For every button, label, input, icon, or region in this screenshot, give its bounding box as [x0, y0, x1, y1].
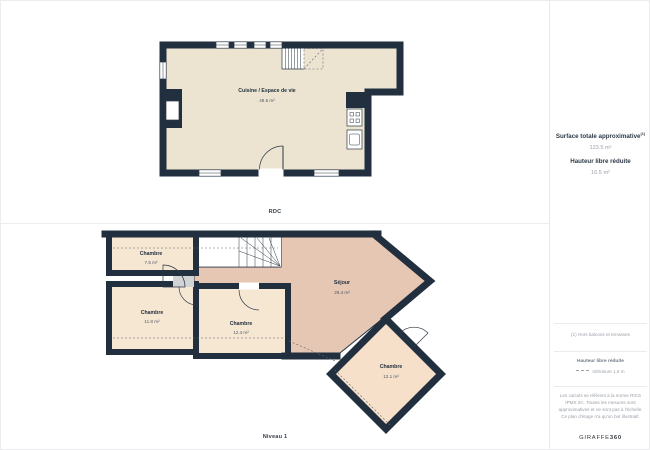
- panel-divider: [554, 323, 647, 324]
- interior-wall: [346, 92, 372, 108]
- room-area: 7.5 m²: [144, 260, 157, 265]
- room-name: Chambre: [380, 364, 403, 370]
- disclaimer-text: Les calculs se réfèrent à la norme RICS …: [557, 393, 644, 421]
- giraffe360-logo: GIRAFFE360: [550, 435, 650, 441]
- room-name: Cuisine / Espace de vie: [238, 88, 295, 94]
- dashed-line-icon: [576, 370, 589, 371]
- room-area: 12.1 m²: [383, 374, 399, 379]
- surface-total-label: Surface totale approximative(1): [550, 132, 650, 140]
- room-name: Séjour: [334, 280, 350, 286]
- footnote-marker: (1): [640, 132, 645, 136]
- floor-section-divider: [1, 223, 549, 224]
- stove-icon: [347, 109, 362, 126]
- footnote-text: (1) Hors balcons et terrasses: [550, 332, 650, 337]
- room-area: 12.4 m²: [233, 330, 249, 335]
- room-name: Chambre: [141, 310, 164, 316]
- entry-door: [166, 101, 179, 120]
- floor-caption-rdc: RDC: [1, 209, 549, 215]
- legend: Hauteur libre réduite Inférieure 1,5 m: [550, 359, 650, 374]
- niveau1-floor-plan: Chambre 7.5 m² Chambre 11.8 m² Chambre 1…: [1, 223, 549, 450]
- legend-item-label: Inférieure 1,5 m: [592, 369, 624, 374]
- floor-caption-niveau1: Niveau 1: [1, 434, 549, 440]
- floorplan-viewer: Cuisine / Espace de vie 49.5 m²: [0, 0, 650, 450]
- reduced-height-value: 16.5 m²: [550, 170, 650, 176]
- rdc-floor-plan: Cuisine / Espace de vie 49.5 m²: [1, 1, 549, 223]
- legend-title: Hauteur libre réduite: [550, 359, 650, 364]
- room-area: 49.5 m²: [259, 98, 275, 103]
- sink-icon: [347, 130, 362, 149]
- floorplan-area: Cuisine / Espace de vie 49.5 m²: [1, 1, 549, 450]
- panel-divider: [554, 351, 647, 352]
- reduced-height-label: Hauteur libre réduite: [550, 158, 650, 165]
- window-icon: [160, 62, 166, 79]
- info-panel: Surface totale approximative(1) 123.5 m²…: [549, 1, 650, 450]
- room-area: 29.4 m²: [334, 290, 350, 295]
- room-name: Chambre: [230, 321, 253, 327]
- surface-stats: Surface totale approximative(1) 123.5 m²…: [550, 132, 650, 176]
- staircase-icon: [199, 238, 281, 268]
- panel-divider: [554, 386, 647, 387]
- room-name: Chambre: [140, 251, 163, 257]
- room-area: 11.8 m²: [144, 319, 160, 324]
